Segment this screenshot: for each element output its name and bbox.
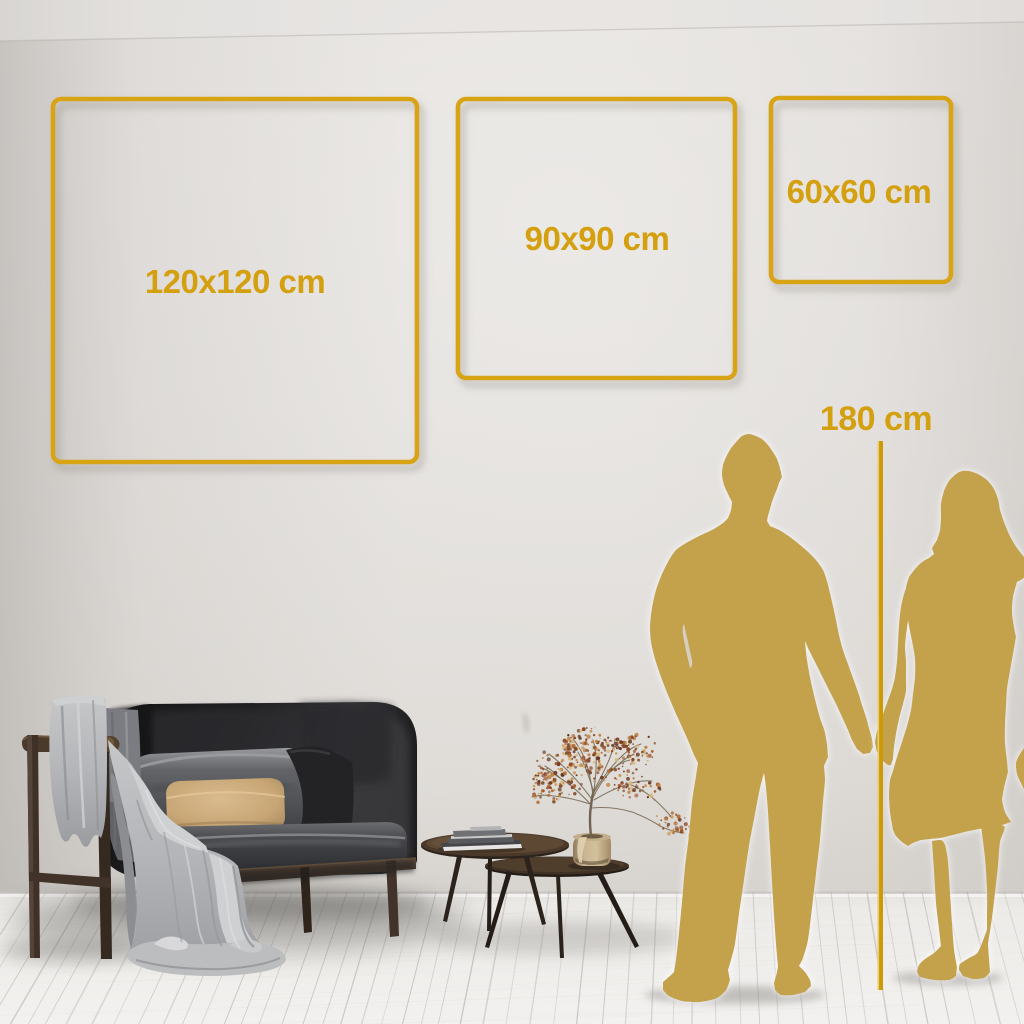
svg-text:90x90 cm: 90x90 cm bbox=[525, 220, 670, 257]
svg-text:120x120 cm: 120x120 cm bbox=[145, 263, 325, 300]
svg-text:60x60 cm: 60x60 cm bbox=[787, 173, 932, 210]
svg-text:180 cm: 180 cm bbox=[820, 400, 932, 438]
